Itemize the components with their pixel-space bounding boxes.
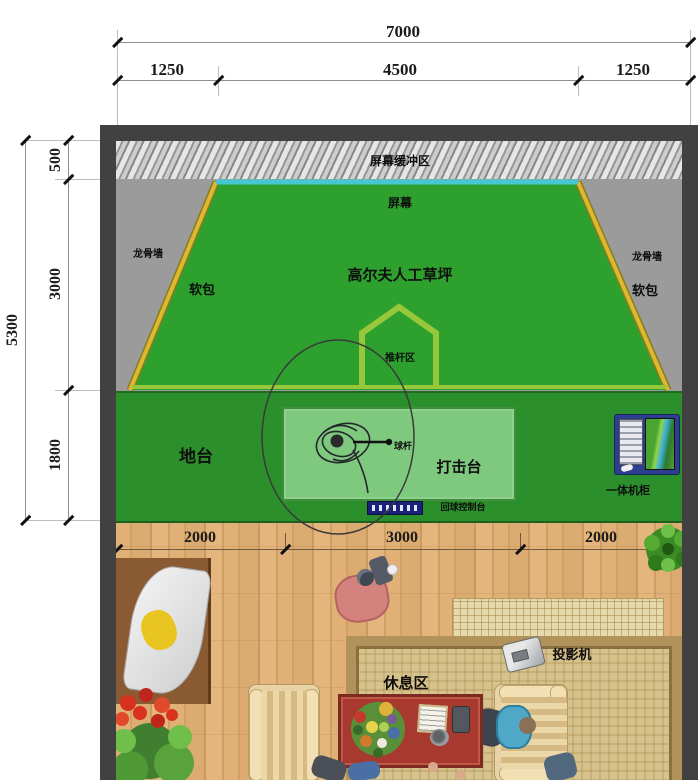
turf-label: 高尔夫人工草坪: [347, 264, 452, 285]
dim-label-2000-right: 2000: [585, 529, 617, 547]
armchair-left: [248, 684, 320, 780]
golf-room-floor-plan: 7000 1250 4500 1250 5300 500 3000 1800 屏…: [0, 0, 698, 780]
projector-label: 投影机: [552, 644, 591, 663]
room-walls: 屏幕缓冲区 屏幕 高尔夫人工草坪 龙骨墙 龙骨墙 软包 软包 推杆区: [100, 125, 698, 780]
platform-label: 地台: [179, 442, 213, 467]
golfer-figure: [295, 405, 405, 495]
dim-line-floor: [116, 549, 682, 550]
projector-lens: [511, 649, 529, 663]
dim-label-3000-floor: 3000: [386, 529, 418, 547]
table-remote: [452, 706, 470, 733]
person-hand: [456, 769, 466, 779]
dim-label-2000-left: 2000: [184, 529, 216, 547]
flower-bouquet: [344, 697, 412, 761]
simulator-cabinet: [614, 414, 680, 475]
soft-pad-right-label: 软包: [632, 280, 658, 299]
standing-person-head: [357, 569, 374, 586]
keel-wall-right-label: 龙骨墙: [632, 248, 662, 263]
cabinet-label: 一体机柜: [606, 482, 650, 498]
putting-area-label: 推杆区: [385, 349, 415, 364]
side-table: [116, 558, 211, 704]
rest-area-label: 休息区: [383, 672, 428, 693]
hitting-deck-label: 打击台: [436, 456, 481, 477]
person-hand: [428, 762, 438, 772]
ball-console-label: 回球控制台: [440, 500, 485, 513]
dim-line-segments-v: [68, 140, 69, 520]
room-interior: 屏幕缓冲区 屏幕 高尔夫人工草坪 龙骨墙 龙骨墙 软包 软包 推杆区: [116, 141, 682, 780]
cabinet-screen-panel: [645, 418, 675, 470]
dim-label-7000: 7000: [386, 22, 420, 42]
dim-label-1250-right: 1250: [616, 60, 650, 80]
table-ashtray: [430, 729, 449, 746]
dim-label-1250-left: 1250: [150, 60, 184, 80]
standing-person-hand: [387, 564, 398, 575]
soft-pad-left-label: 软包: [189, 279, 215, 298]
seated-person-head: [519, 717, 536, 734]
dim-label-4500: 4500: [383, 60, 417, 80]
buffer-zone-label: 屏幕缓冲区: [370, 152, 430, 169]
club-label: 球杆: [394, 439, 412, 452]
dim-line-total: [117, 42, 690, 43]
ball-return-console: [367, 501, 423, 515]
dim-label-1800: 1800: [47, 439, 65, 471]
dim-line-segments: [117, 80, 690, 81]
plant: [638, 519, 682, 579]
flower-pot: [116, 685, 216, 780]
person-legs: [347, 760, 381, 780]
screen-label: 屏幕: [388, 194, 412, 211]
dim-label-5300: 5300: [4, 314, 22, 346]
seat-cushion: [261, 691, 307, 780]
cabinet-detail: [620, 464, 633, 473]
dim-label-500: 500: [47, 148, 65, 172]
keel-wall-left-label: 龙骨墙: [133, 245, 163, 260]
dim-line-total-v: [25, 140, 26, 520]
console-lights: [372, 505, 418, 511]
dim-label-3000-left: 3000: [47, 268, 65, 300]
cabinet-rack-panel: [619, 419, 643, 465]
